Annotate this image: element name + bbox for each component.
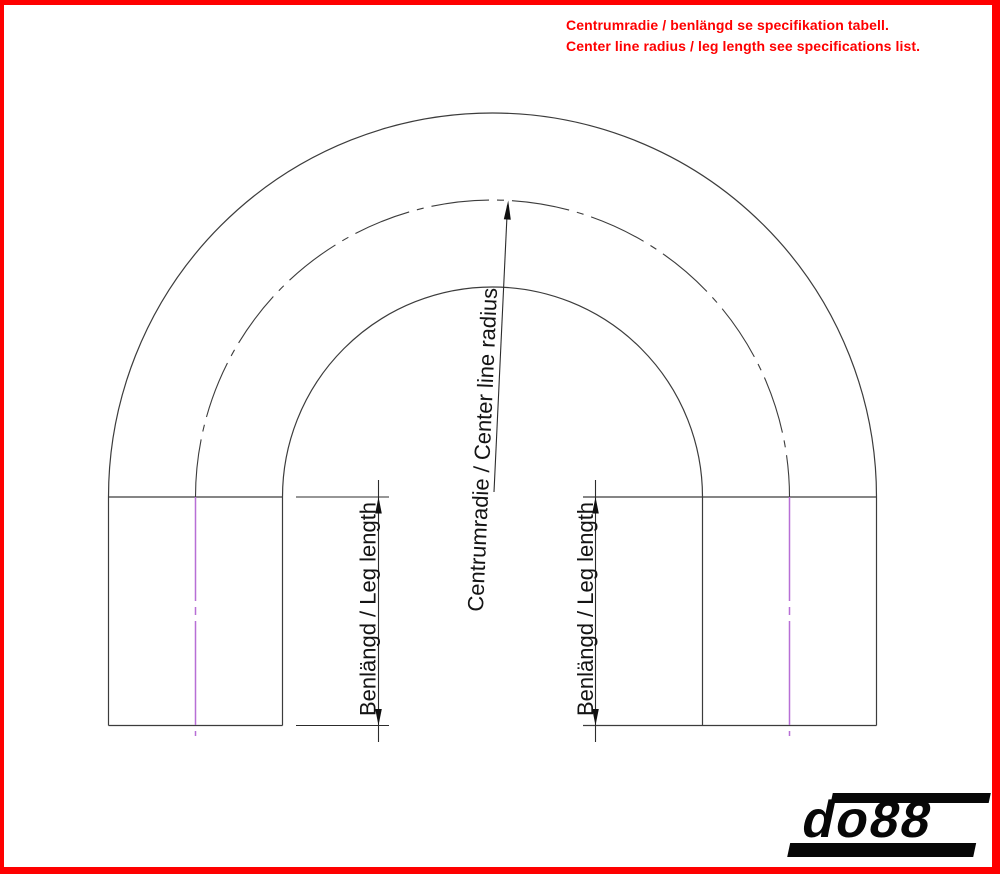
spec-notice-line-swedish: Centrumradie / benlängd se specifikation… [566, 15, 920, 36]
radius-arrowhead [504, 201, 511, 220]
spec-drawing-canvas: Centrumradie / benlängd se specifikation… [0, 0, 1000, 874]
do88-logo-text: do88 [798, 794, 938, 846]
bend-diagram: Benlängd / Leg length Benlängd / Leg len… [0, 0, 1000, 874]
do88-logo: do88 [785, 790, 1000, 860]
spec-notice: Centrumradie / benlängd se specifikation… [566, 15, 920, 57]
right-leg-length-label: Benlängd / Leg length [573, 502, 598, 716]
left-leg-length-label: Benlängd / Leg length [356, 502, 381, 716]
spec-notice-line-english: Center line radius / leg length see spec… [566, 36, 920, 57]
right-leg-outline [583, 497, 877, 726]
do88-logo-bottom-bar [787, 843, 976, 857]
